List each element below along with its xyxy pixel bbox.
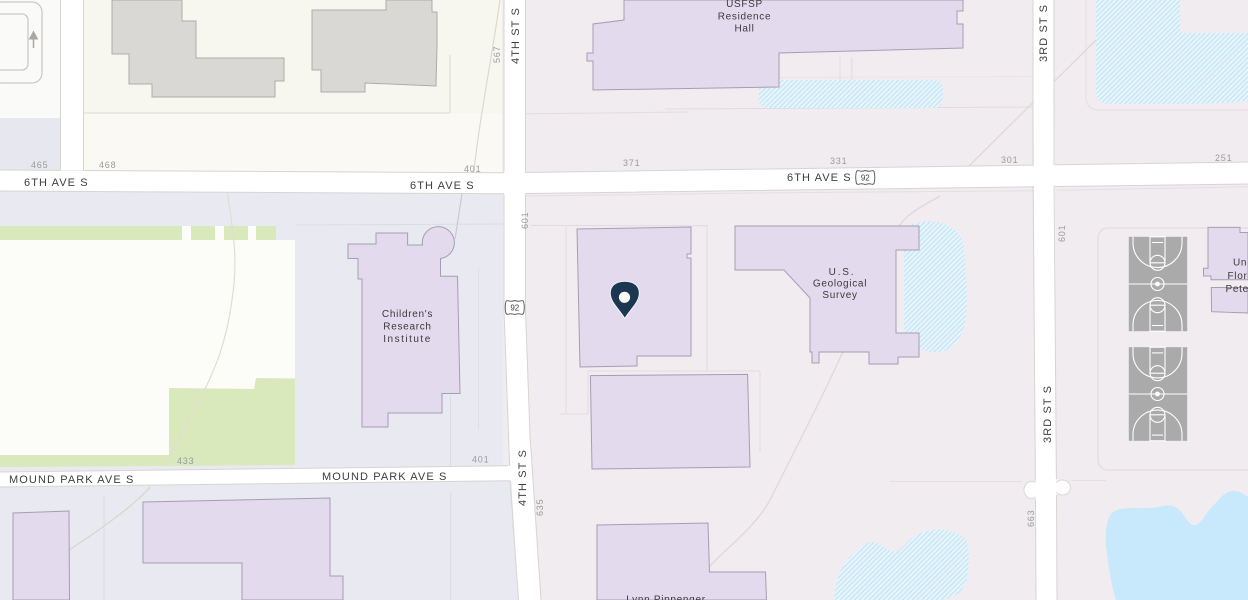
svg-text:465: 465 bbox=[31, 160, 48, 170]
svg-text:567: 567 bbox=[492, 46, 502, 63]
svg-text:USFSP: USFSP bbox=[726, 0, 763, 10]
svg-text:Flor: Flor bbox=[1228, 271, 1248, 282]
svg-text:Survey: Survey bbox=[822, 290, 857, 301]
svg-text:4TH ST S: 4TH ST S bbox=[510, 7, 522, 64]
svg-text:Lynn Pippenger: Lynn Pippenger bbox=[626, 595, 705, 600]
svg-text:Residence: Residence bbox=[718, 12, 772, 23]
svg-text:MOUND PARK AVE S: MOUND PARK AVE S bbox=[322, 471, 447, 483]
svg-text:6TH AVE S: 6TH AVE S bbox=[24, 177, 89, 189]
svg-text:3RD ST S: 3RD ST S bbox=[1038, 4, 1050, 62]
svg-text:601: 601 bbox=[520, 212, 530, 229]
svg-text:92: 92 bbox=[510, 304, 519, 313]
svg-text:433: 433 bbox=[177, 456, 194, 466]
svg-text:6TH AVE S: 6TH AVE S bbox=[787, 172, 852, 184]
svg-text:92: 92 bbox=[861, 174, 870, 183]
svg-text:Hall: Hall bbox=[734, 24, 754, 35]
svg-text:601: 601 bbox=[1057, 225, 1067, 242]
svg-text:301: 301 bbox=[1001, 155, 1018, 165]
svg-text:Children's: Children's bbox=[382, 309, 433, 320]
svg-text:U.S.: U.S. bbox=[829, 267, 856, 278]
svg-text:Research: Research bbox=[383, 322, 431, 333]
svg-text:3RD ST S: 3RD ST S bbox=[1042, 385, 1054, 443]
svg-text:Un: Un bbox=[1233, 258, 1247, 269]
svg-text:401: 401 bbox=[464, 164, 481, 174]
svg-text:4TH ST S: 4TH ST S bbox=[517, 449, 529, 506]
svg-text:Institute: Institute bbox=[383, 334, 432, 345]
svg-text:468: 468 bbox=[99, 160, 116, 170]
svg-text:Pete: Pete bbox=[1226, 284, 1248, 295]
svg-text:635: 635 bbox=[535, 499, 545, 516]
svg-text:663: 663 bbox=[1026, 510, 1036, 527]
svg-text:6TH AVE S: 6TH AVE S bbox=[410, 180, 475, 192]
svg-text:251: 251 bbox=[1215, 153, 1232, 163]
svg-text:MOUND PARK AVE S: MOUND PARK AVE S bbox=[9, 474, 134, 486]
svg-text:Geological: Geological bbox=[813, 279, 867, 290]
svg-text:401: 401 bbox=[472, 455, 489, 465]
svg-text:331: 331 bbox=[830, 156, 847, 166]
svg-text:371: 371 bbox=[623, 158, 640, 168]
